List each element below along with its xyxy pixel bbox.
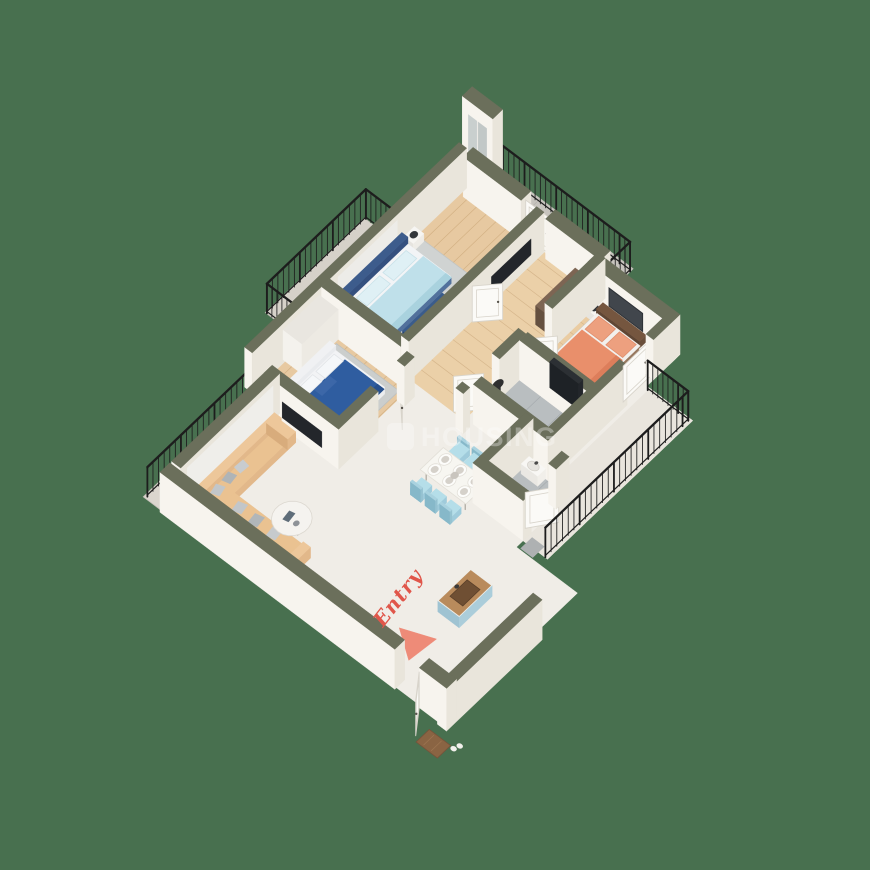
- floor-plan-stage: HOUSING Entry: [0, 0, 870, 870]
- wall-se-bath2-b-face-sw: [548, 464, 556, 510]
- dining-chair-4-back-face-se: [421, 488, 423, 503]
- wall-se-bath2-a-face-sw: [515, 495, 523, 541]
- watermark-logo-icon: [387, 423, 414, 450]
- iwall-bedroom2-se-a-face-sw: [331, 424, 339, 470]
- dining-chair-5-back-face-se: [435, 499, 437, 514]
- watermark: HOUSING: [387, 422, 558, 452]
- iwall-bedroom2-se-b-face-sw: [397, 361, 405, 407]
- floor-plan-3d-render: HOUSING Entry: [0, 0, 870, 870]
- page: { "canvas": {"w": 870, "h": 870, "backgr…: [0, 0, 870, 870]
- door-entry-handle: [415, 713, 417, 715]
- faucet-bathroom-2: [535, 461, 539, 464]
- coffee-table: [271, 501, 312, 535]
- watermark-text: HOUSING: [421, 422, 558, 452]
- door-master-bedroom-handle: [497, 301, 499, 303]
- dining-chair-6-back-face-se: [450, 510, 452, 525]
- door-bedroom-2-handle: [401, 407, 403, 409]
